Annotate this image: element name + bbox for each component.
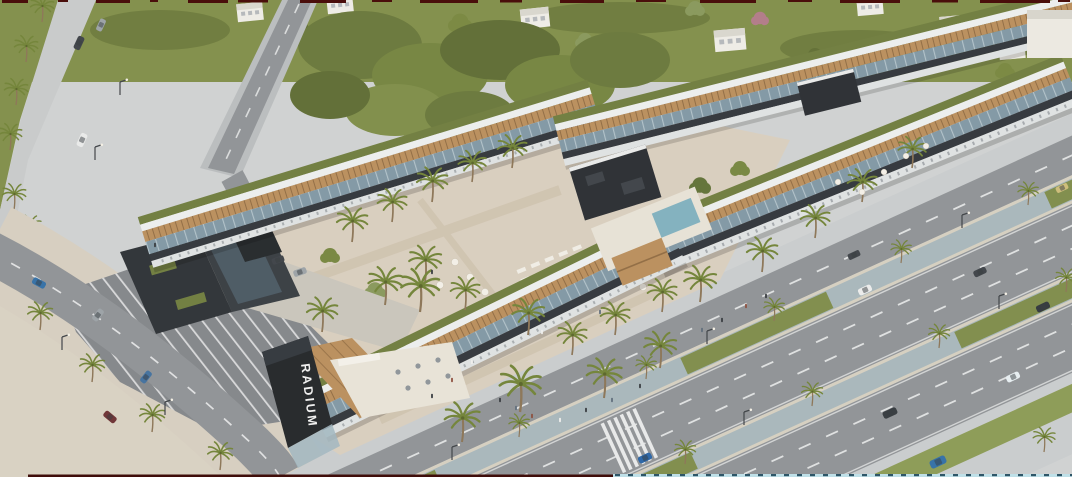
light-overlay xyxy=(0,0,1072,477)
aerial-render-scene: RADIUM xyxy=(0,0,1072,477)
aerial-render-screenshot: RADIUM xyxy=(0,0,1072,477)
